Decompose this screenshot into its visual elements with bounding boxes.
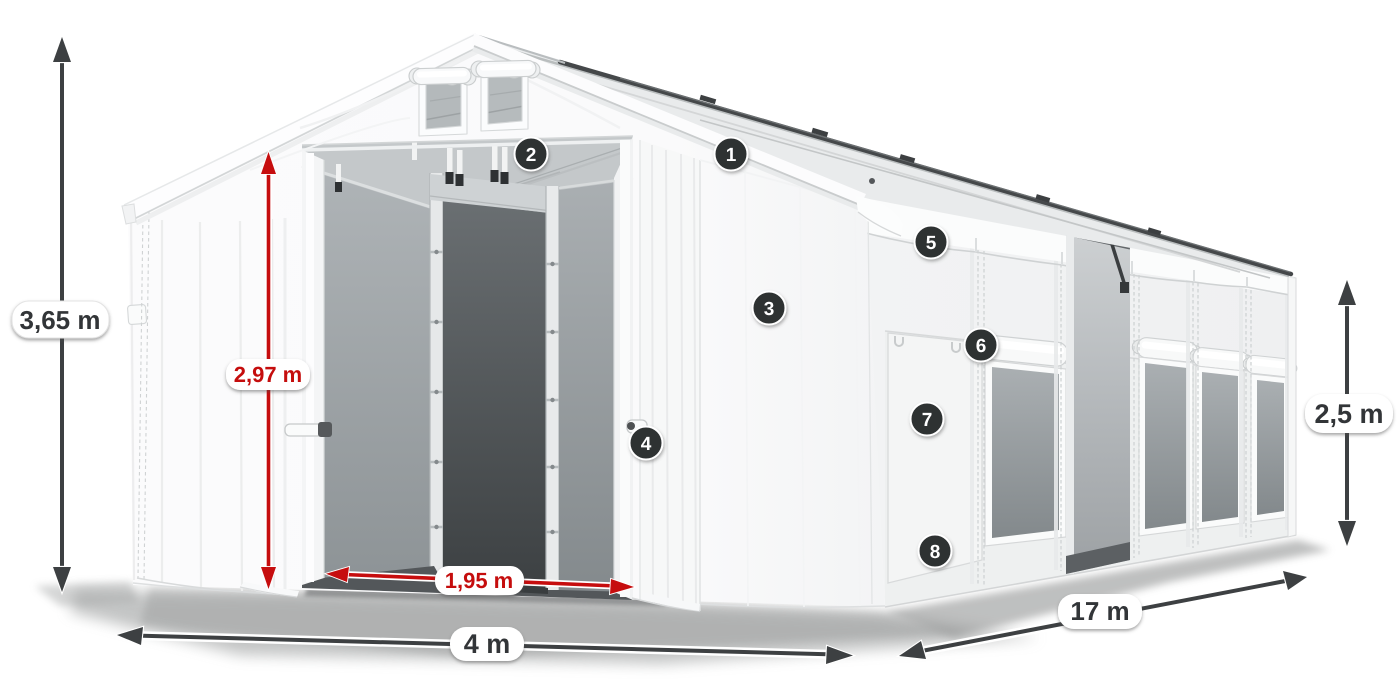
svg-text:2,5 m: 2,5 m [1314,399,1383,429]
svg-text:4 m: 4 m [464,629,511,659]
svg-text:7: 7 [922,410,933,431]
svg-text:1,95 m: 1,95 m [445,568,514,593]
svg-text:2,97 m: 2,97 m [234,362,303,387]
svg-text:3,65 m: 3,65 m [20,305,101,335]
svg-text:17 m: 17 m [1070,596,1129,626]
svg-text:5: 5 [926,233,937,254]
svg-text:2: 2 [526,145,537,166]
svg-text:3: 3 [764,299,775,320]
svg-text:8: 8 [930,542,941,563]
svg-text:6: 6 [976,336,987,357]
svg-text:4: 4 [641,434,652,455]
svg-text:1: 1 [726,145,737,166]
